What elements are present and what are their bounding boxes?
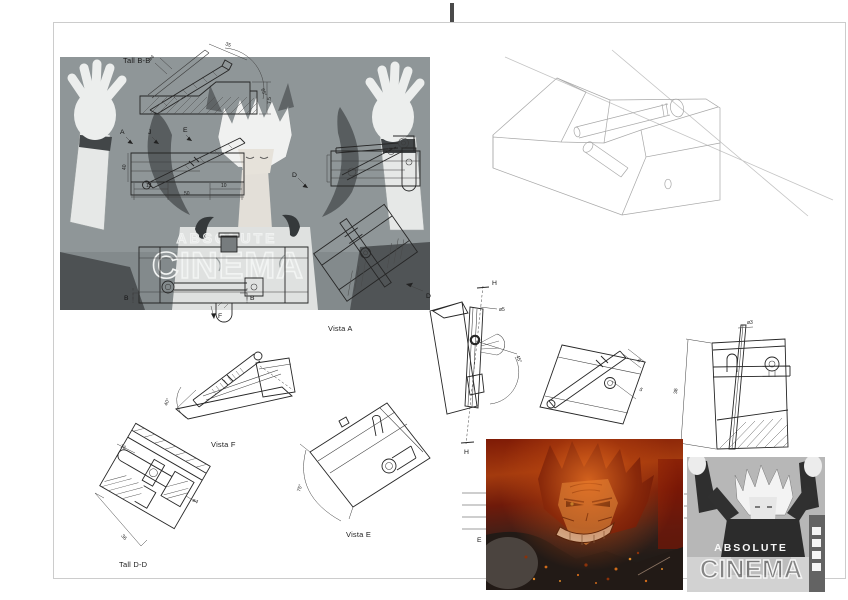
- label-vista-a: Vista A: [328, 324, 353, 333]
- sukuna-image: [486, 439, 683, 590]
- label-vista-f: Vista F: [211, 440, 236, 449]
- meme-top-absolute-text: ABSOLUTE: [60, 230, 394, 246]
- meme-bottom-cinema-text: CINEMA: [687, 554, 819, 585]
- top-center-mark: [450, 3, 454, 22]
- meme-top-cinema-text: CINEMA: [60, 245, 396, 287]
- meme-image-bottom-right: ABSOLUTE CINEMA: [687, 457, 825, 592]
- sukuna-glow: [486, 439, 683, 590]
- label-tall-dd: Tall D-D: [119, 560, 147, 569]
- meme-image-top-left: ABSOLUTE CINEMA: [60, 57, 430, 310]
- meme-bottom-absolute-text: ABSOLUTE: [687, 542, 815, 554]
- label-tall-bb: Tall B-B: [123, 56, 150, 65]
- label-vista-e: Vista E: [346, 530, 371, 539]
